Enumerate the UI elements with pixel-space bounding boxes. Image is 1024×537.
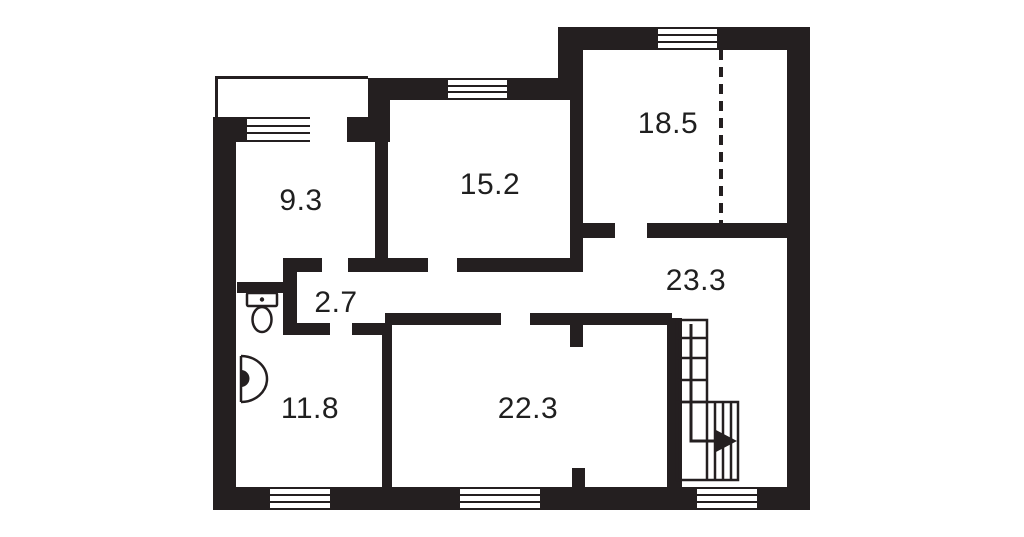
wall-segment <box>507 78 583 100</box>
wall-segment <box>382 325 392 487</box>
dashed-partition-line <box>719 50 723 223</box>
room-area-label: 23.3 <box>666 264 726 298</box>
wall-segment <box>368 78 448 100</box>
wall-segment <box>368 100 390 142</box>
window-symbol <box>658 27 717 50</box>
wall-segment <box>583 223 615 238</box>
wall-segment <box>647 223 787 238</box>
wall-segment <box>213 117 236 510</box>
wall-segment <box>717 27 787 50</box>
wall-segment <box>348 258 428 272</box>
balcony-outline <box>215 76 368 79</box>
floor-plan: 9.3 15.2 18.5 23.3 2.7 11.8 22.3 <box>0 0 1024 537</box>
room-area-label: 2.7 <box>314 286 357 320</box>
wall-segment <box>570 313 583 347</box>
room-area-label: 9.3 <box>279 184 322 218</box>
window-symbol <box>270 487 330 510</box>
room-area-label: 15.2 <box>460 168 520 202</box>
room-area-label: 11.8 <box>281 392 339 426</box>
wall-segment <box>375 142 388 272</box>
wall-segment <box>283 323 330 335</box>
direction-arrow-icon <box>714 429 737 453</box>
sink-icon <box>236 354 272 404</box>
window-symbol <box>247 117 310 142</box>
wall-segment <box>530 313 672 325</box>
wall-segment <box>457 258 583 272</box>
window-symbol <box>460 487 540 510</box>
staircase-icon <box>670 315 745 487</box>
wall-segment <box>385 313 501 325</box>
balcony-outline <box>215 76 218 117</box>
room-area-label: 22.3 <box>498 392 558 426</box>
wall-segment <box>572 468 585 487</box>
room-area-label: 18.5 <box>638 107 698 141</box>
wall-segment <box>787 27 810 510</box>
wall-segment <box>570 100 583 272</box>
window-symbol <box>697 487 757 510</box>
stair-walk-line <box>691 324 716 441</box>
window-symbol <box>448 78 507 100</box>
wall-segment <box>213 117 247 142</box>
toilet-icon <box>244 291 282 335</box>
